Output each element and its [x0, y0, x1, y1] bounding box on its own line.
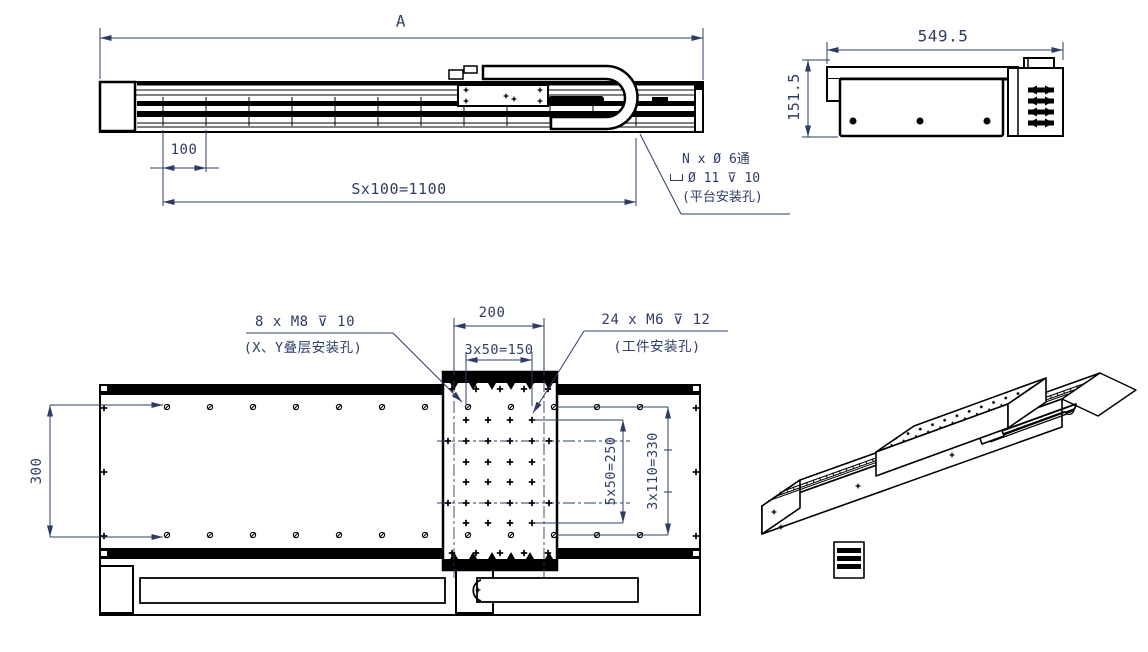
- side-right-cap: [695, 83, 703, 132]
- dim-hole-pitch-label: Sx100=1100: [351, 180, 446, 198]
- work-holes-callout-line1: 24 x M6 ⊽ 12: [602, 312, 711, 328]
- dim-hole-span-y-label: 5x50=250: [603, 436, 619, 505]
- platform-callout-line2: Ø 11 ⊽ 10: [670, 169, 763, 188]
- dim-width-label: 549.5: [918, 27, 969, 46]
- end-body: [840, 79, 1003, 136]
- dim-carriage-width-label: 200: [479, 305, 506, 321]
- side-end-block: [100, 82, 135, 131]
- stack-holes-callout-line1: 8 x M8 ⊽ 10: [255, 314, 355, 330]
- counterbore-icon: [670, 174, 683, 181]
- work-holes-callout-line2: (工件安装孔): [613, 335, 700, 355]
- dim-height-label: 151.5: [785, 73, 803, 121]
- dim-first-pitch-label: 100: [171, 142, 198, 158]
- platform-holes-callout: N x Ø 6通 Ø 11 ⊽ 10 (平台安装孔): [670, 150, 763, 207]
- iso-view-drawing: [762, 373, 1136, 578]
- end-view-drawing: [802, 42, 1063, 137]
- plan-view-drawing: [50, 318, 728, 615]
- dim-outer-hole-span-y-label: 3x110=330: [645, 432, 661, 510]
- dim-hole-span-x-label: 3x50=150: [464, 342, 533, 358]
- stack-holes-callout-line2: (X、Y叠层安装孔): [244, 336, 363, 356]
- side-carriage-plate: [458, 85, 548, 106]
- platform-callout-line3: (平台安装孔): [670, 188, 763, 207]
- platform-callout-line1: N x Ø 6通: [670, 150, 763, 169]
- engineering-drawing-canvas: A 100 Sx100=1100 N x Ø 6通 Ø 11 ⊽ 10 (平台安…: [0, 0, 1148, 652]
- end-top-plate: [827, 67, 1018, 79]
- drawing-linework: [0, 0, 1148, 652]
- dim-overall-length-label: A: [396, 12, 406, 31]
- dim-rail-width-label: 300: [29, 458, 45, 485]
- plan-lower-channel: [100, 558, 700, 615]
